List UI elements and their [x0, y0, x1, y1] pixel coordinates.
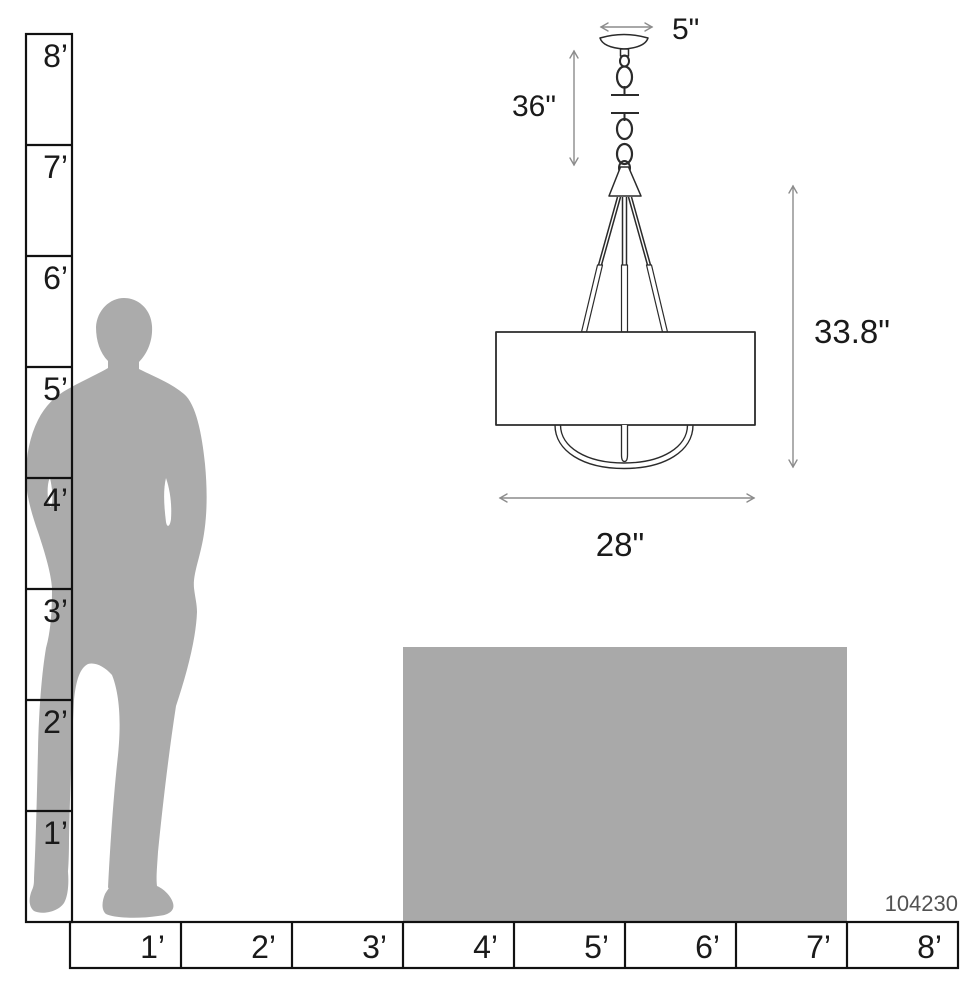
- cone-holder: [609, 167, 641, 196]
- vertical-ruler-label: 5’: [43, 371, 68, 407]
- vertical-ruler-label: 3’: [43, 593, 68, 629]
- canopy-width-label: 5": [672, 13, 699, 46]
- fixture-height-label: 33.8": [814, 313, 890, 350]
- vertical-ruler-label: 2’: [43, 704, 68, 740]
- center-finial: [622, 425, 628, 462]
- support-rod-center-thick: [622, 265, 628, 332]
- support-rod-right-thick: [647, 265, 668, 332]
- vertical-ruler-label: 7’: [43, 149, 68, 185]
- horizontal-ruler-labels: 1’ 2’ 3’ 4’ 5’ 6’ 7’ 8’: [140, 929, 942, 965]
- support-rod-left: [602, 197, 621, 265]
- chain-link: [617, 67, 632, 88]
- horizontal-ruler-label: 2’: [251, 929, 276, 965]
- drum-shade: [496, 332, 755, 425]
- dim-arrow-fixture-width: [500, 494, 754, 502]
- chain-loop-top: [620, 56, 629, 67]
- vertical-ruler-label: 8’: [43, 38, 68, 74]
- horizontal-ruler-label: 7’: [806, 929, 831, 965]
- dimension-diagram-page: 8’ 7’ 6’ 5’ 4’ 3’ 2’ 1’ 1’ 2’ 3’ 4’ 5’ 6…: [0, 0, 978, 990]
- dim-arrow-chain-drop: [570, 51, 578, 165]
- canopy: [600, 35, 648, 50]
- vertical-ruler-label: 6’: [43, 260, 68, 296]
- dimension-diagram: 8’ 7’ 6’ 5’ 4’ 3’ 2’ 1’ 1’ 2’ 3’ 4’ 5’ 6…: [0, 0, 978, 990]
- chain-link: [617, 119, 632, 139]
- support-rod-right: [632, 197, 651, 265]
- horizontal-ruler-label: 3’: [362, 929, 387, 965]
- horizontal-ruler-label: 6’: [695, 929, 720, 965]
- horizontal-ruler-label: 1’: [140, 929, 165, 965]
- dim-arrow-fixture-height: [789, 186, 797, 467]
- table-block: [403, 647, 847, 922]
- vertical-ruler-label: 1’: [43, 815, 68, 851]
- fixture-width-label: 28": [596, 526, 644, 563]
- chain-drop-label: 36": [512, 90, 556, 123]
- support-rod-left-thick: [582, 265, 603, 332]
- support-rod-right: [629, 197, 648, 265]
- support-rod-left: [599, 197, 618, 265]
- dim-arrow-canopy-width: [601, 23, 652, 31]
- horizontal-ruler-label: 4’: [473, 929, 498, 965]
- dimension-labels: 5" 36" 33.8" 28": [512, 13, 890, 563]
- horizontal-ruler-label: 5’: [584, 929, 609, 965]
- product-number: 104230: [885, 891, 958, 916]
- horizontal-ruler-label: 8’: [917, 929, 942, 965]
- vertical-ruler-label: 4’: [43, 482, 68, 518]
